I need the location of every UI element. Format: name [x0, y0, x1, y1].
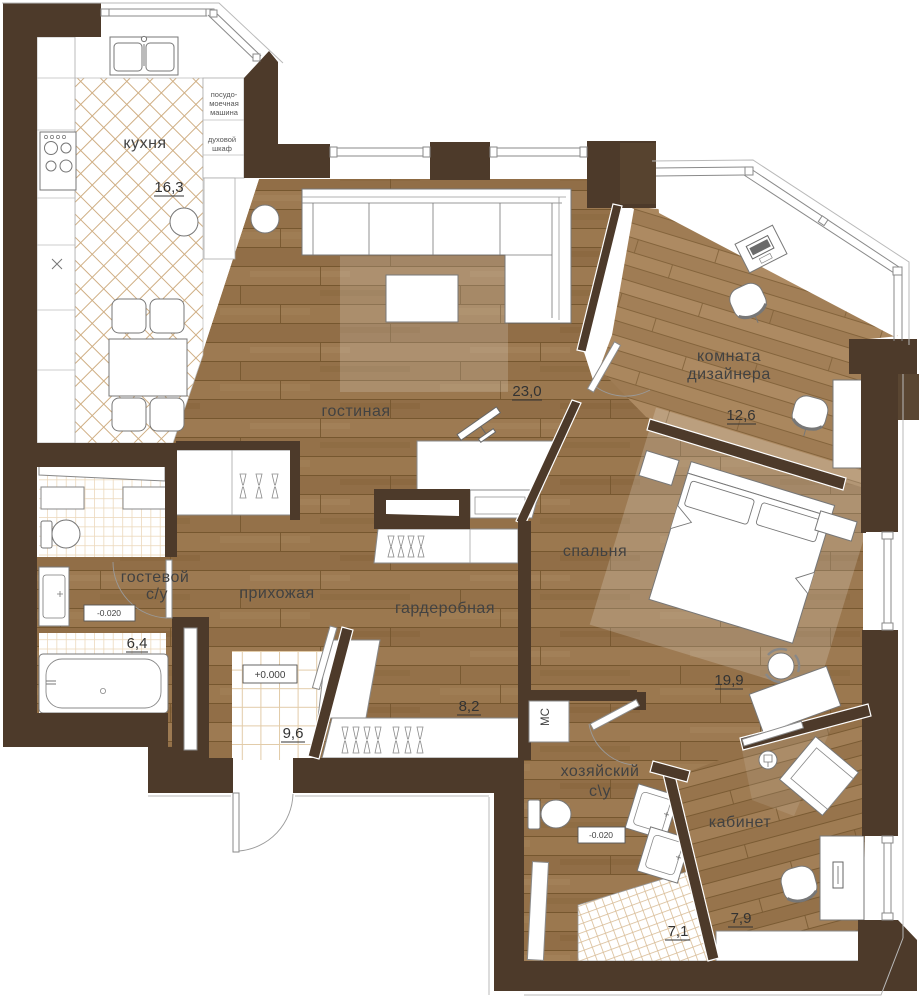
- svg-text:машина: машина: [210, 108, 239, 117]
- svg-text:моечная: моечная: [209, 99, 239, 108]
- svg-text:16,3: 16,3: [154, 179, 183, 196]
- svg-text:7,9: 7,9: [731, 910, 752, 927]
- svg-text:хозяйский: хозяйский: [561, 763, 640, 780]
- svg-text:посудо-: посудо-: [211, 90, 238, 99]
- svg-text:комната: комната: [697, 348, 761, 365]
- svg-text:гардеробная: гардеробная: [395, 600, 495, 617]
- svg-text:гостевой: гостевой: [121, 569, 190, 586]
- svg-text:спальня: спальня: [563, 543, 627, 560]
- svg-text:духовой: духовой: [208, 135, 236, 144]
- svg-text:гостиная: гостиная: [321, 403, 390, 420]
- svg-text:кабинет: кабинет: [709, 814, 772, 831]
- svg-text:с/у: с/у: [146, 586, 168, 603]
- svg-text:8,2: 8,2: [459, 698, 480, 715]
- svg-text:с\у: с\у: [589, 783, 611, 800]
- svg-text:6,4: 6,4: [127, 635, 148, 652]
- svg-text:+0.000: +0.000: [255, 670, 286, 681]
- svg-text:7,1: 7,1: [668, 923, 689, 940]
- svg-text:12,6: 12,6: [726, 407, 755, 424]
- svg-text:-0.020: -0.020: [97, 608, 121, 618]
- svg-text:9,6: 9,6: [283, 725, 304, 742]
- svg-text:шкаф: шкаф: [212, 144, 232, 153]
- svg-text:кухня: кухня: [123, 135, 166, 152]
- svg-text:19,9: 19,9: [714, 672, 743, 689]
- svg-text:-0.020: -0.020: [589, 830, 613, 840]
- svg-text:23,0: 23,0: [512, 383, 541, 400]
- svg-text:МС: МС: [540, 708, 552, 726]
- svg-text:прихожая: прихожая: [239, 585, 314, 602]
- svg-text:дизайнера: дизайнера: [687, 366, 770, 383]
